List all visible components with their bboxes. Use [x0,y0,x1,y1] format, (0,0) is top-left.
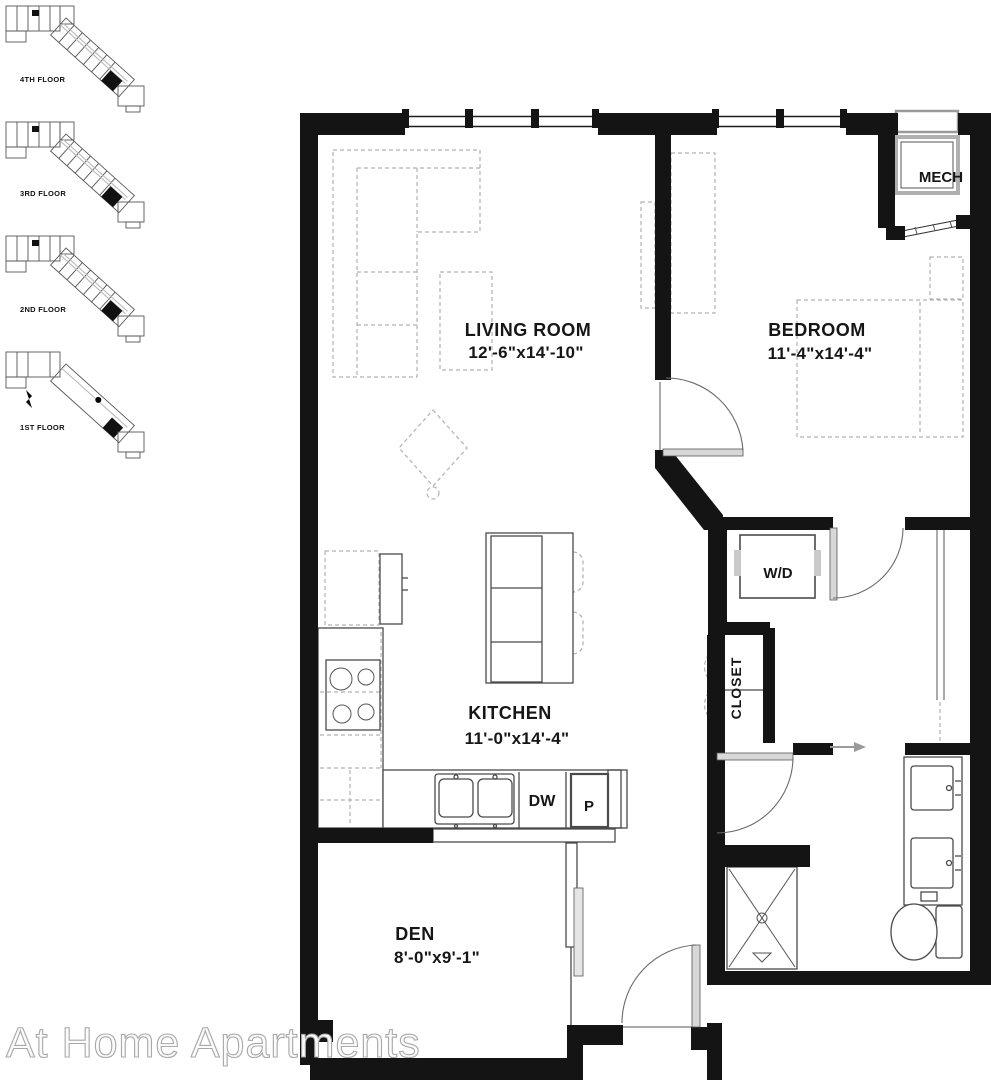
keyplan-4th-floor-label: 4TH FLOOR [20,75,65,84]
watermark: At Home Apartments [6,1019,421,1067]
keyplan-3rd-floor-label: 3RD FLOOR [20,189,66,198]
kitchen-dims: 11'-0"x14'-4" [465,729,570,748]
wd-hookup [734,550,741,576]
toilet-tank [936,906,962,958]
keyplan-1st-floor: 1ST FLOOR [6,352,144,458]
bathroom-door-swing [717,757,793,833]
keyplan-2nd-floor-label: 2ND FLOOR [20,305,66,314]
furniture-outlines [333,150,963,741]
kitchen-label: KITCHEN [468,703,552,723]
sliding-door [574,888,583,976]
floor-plan-page: 4TH FLOOR 3RD FLOOR 2ND FLOOR 1ST FLOOR [0,0,991,1080]
chair-outline [399,410,467,486]
entry-door-swing [622,945,696,1023]
closet-label: CLOSET [728,657,744,720]
bathroom-door-leaf [717,753,793,760]
tv-console-outline [641,202,655,308]
bedroom-door-swing [666,378,743,451]
den-label: DEN [395,924,435,944]
mech-window [896,111,958,132]
den-dims: 8'-0"x9'-1" [394,948,480,967]
bedroom-label: BEDROOM [768,320,866,340]
toilet-bowl [891,904,937,960]
washer-dryer-label: W/D [763,565,792,582]
dishwasher-label: DW [529,793,557,810]
living-room-label: LIVING ROOM [465,320,592,340]
shower-drain [753,953,771,962]
keyplan-1st-floor-label: 1ST FLOOR [20,423,65,432]
mech-label: MECH [919,169,963,186]
hall-door-swing [833,528,903,598]
kitchen-island [486,533,573,683]
floor-plan-drawing: 4TH FLOOR 3RD FLOOR 2ND FLOOR 1ST FLOOR [0,0,991,1080]
bedroom-dims: 11'-4"x14'-4" [768,344,873,363]
keyplan-4th-floor: 4TH FLOOR [6,6,144,112]
pantry-label: P [584,798,594,815]
fixtures [318,111,964,1027]
fridge-door [380,554,402,624]
dresser-outline [671,153,715,313]
sofa-outline [333,150,480,377]
bedroom-door-leaf [663,449,743,456]
keyplan-2nd-floor: 2ND FLOOR [6,236,144,342]
hall-door-leaf [830,528,837,600]
keyplan-3rd-floor: 3RD FLOOR [6,122,144,228]
wd-hookup [814,550,821,576]
living-room-dims: 12'-6"x14'-10" [468,343,583,362]
room-labels: LIVING ROOM 12'-6"x14'-10" BEDROOM 11'-4… [394,169,963,967]
mech-door [897,219,964,238]
nightstand-outline [930,257,963,299]
fridge-outline [325,551,379,625]
entry-door-leaf [692,945,700,1027]
